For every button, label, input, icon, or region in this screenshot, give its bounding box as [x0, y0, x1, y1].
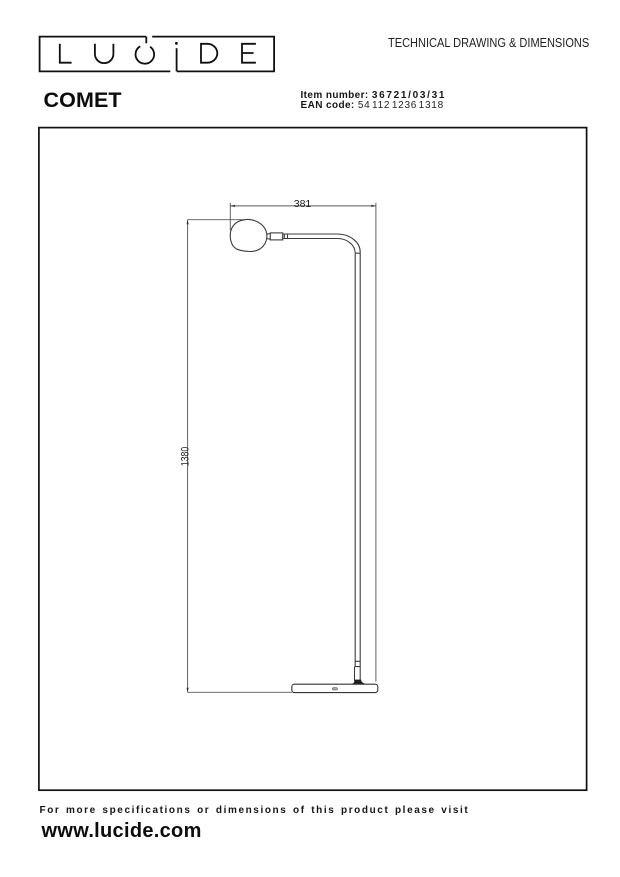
svg-text:1380: 1380 — [180, 447, 192, 467]
svg-text:381: 381 — [294, 198, 312, 210]
